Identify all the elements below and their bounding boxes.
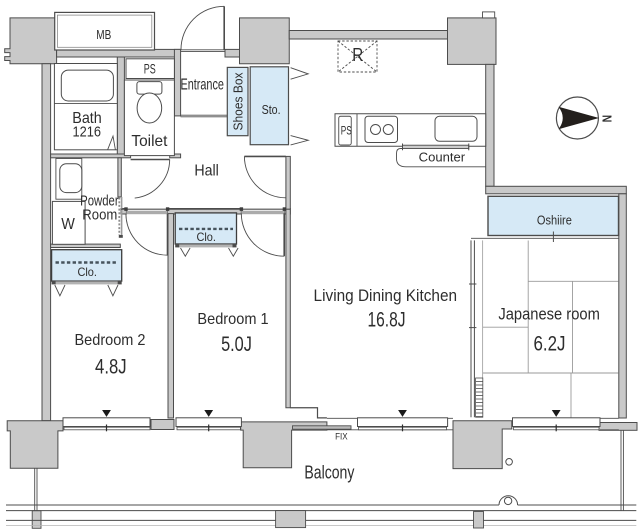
svg-text:Entrance: Entrance bbox=[180, 77, 224, 94]
svg-text:1216: 1216 bbox=[73, 124, 102, 141]
svg-text:Bedroom 2: Bedroom 2 bbox=[75, 332, 146, 349]
svg-text:Counter: Counter bbox=[419, 150, 466, 164]
svg-text:5.0J: 5.0J bbox=[221, 332, 252, 356]
svg-text:16.8J: 16.8J bbox=[368, 308, 406, 332]
svg-text:FIX: FIX bbox=[335, 432, 348, 442]
svg-text:Bedroom 1: Bedroom 1 bbox=[197, 311, 268, 328]
svg-text:N: N bbox=[600, 115, 615, 123]
svg-text:Balcony: Balcony bbox=[304, 462, 354, 482]
svg-text:Oshiire: Oshiire bbox=[537, 213, 572, 228]
svg-text:PS: PS bbox=[144, 61, 156, 76]
svg-text:6.2J: 6.2J bbox=[534, 331, 566, 355]
svg-text:Room: Room bbox=[82, 207, 117, 224]
svg-text:4.8J: 4.8J bbox=[95, 355, 127, 379]
svg-text:Toilet: Toilet bbox=[131, 133, 168, 150]
svg-text:Clo.: Clo. bbox=[196, 230, 216, 244]
svg-text:Clo.: Clo. bbox=[77, 265, 97, 279]
svg-text:MB: MB bbox=[96, 27, 111, 42]
svg-text:R: R bbox=[352, 45, 363, 65]
svg-text:Shoes Box: Shoes Box bbox=[231, 72, 245, 131]
svg-text:W: W bbox=[61, 216, 75, 233]
svg-text:Sto.: Sto. bbox=[262, 102, 281, 117]
svg-text:Living Dining Kitchen: Living Dining Kitchen bbox=[314, 287, 458, 305]
svg-text:Hall: Hall bbox=[194, 163, 219, 180]
svg-text:PS: PS bbox=[341, 126, 352, 138]
svg-text:Japanese room: Japanese room bbox=[498, 305, 600, 323]
